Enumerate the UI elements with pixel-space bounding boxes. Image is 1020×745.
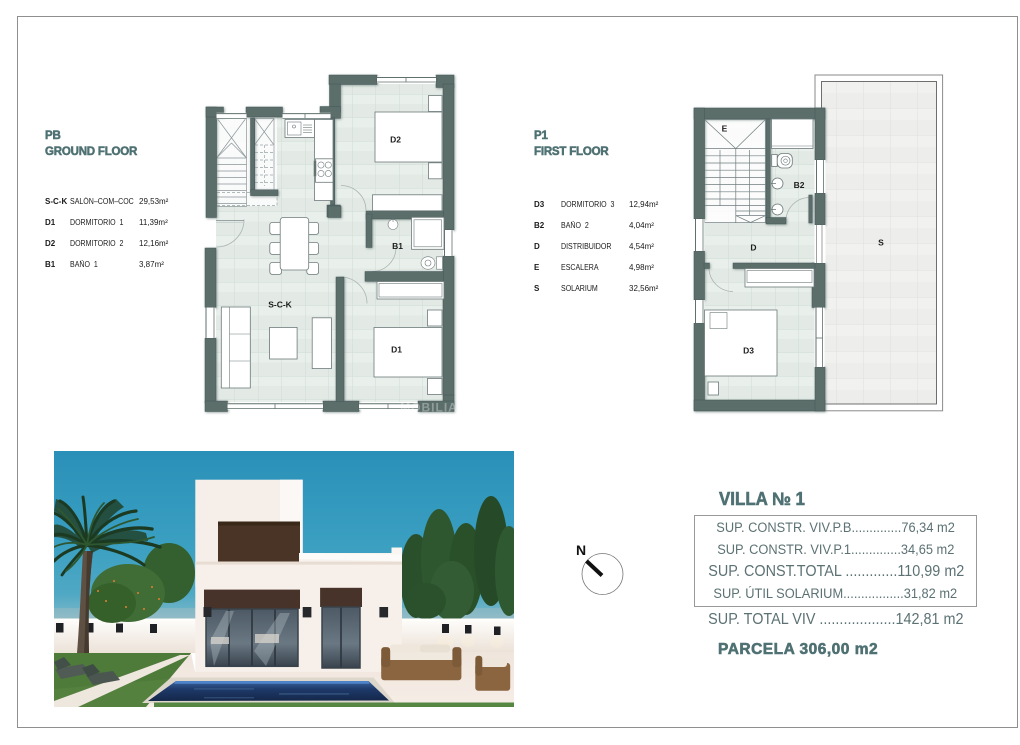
svg-text:D3: D3 (743, 346, 754, 356)
svg-text:B1: B1 (392, 241, 403, 251)
svg-text:D2: D2 (390, 135, 401, 145)
svg-text:D: D (750, 243, 756, 253)
svg-text:S-C-K: S-C-K (268, 300, 292, 310)
svg-text:E: E (722, 124, 728, 134)
svg-text:S: S (878, 238, 884, 248)
svg-text:N: N (576, 542, 586, 558)
svg-text:B2: B2 (794, 180, 805, 190)
svg-text:D1: D1 (391, 345, 402, 355)
svg-text:MOBILIA: MOBILIA (400, 401, 458, 415)
